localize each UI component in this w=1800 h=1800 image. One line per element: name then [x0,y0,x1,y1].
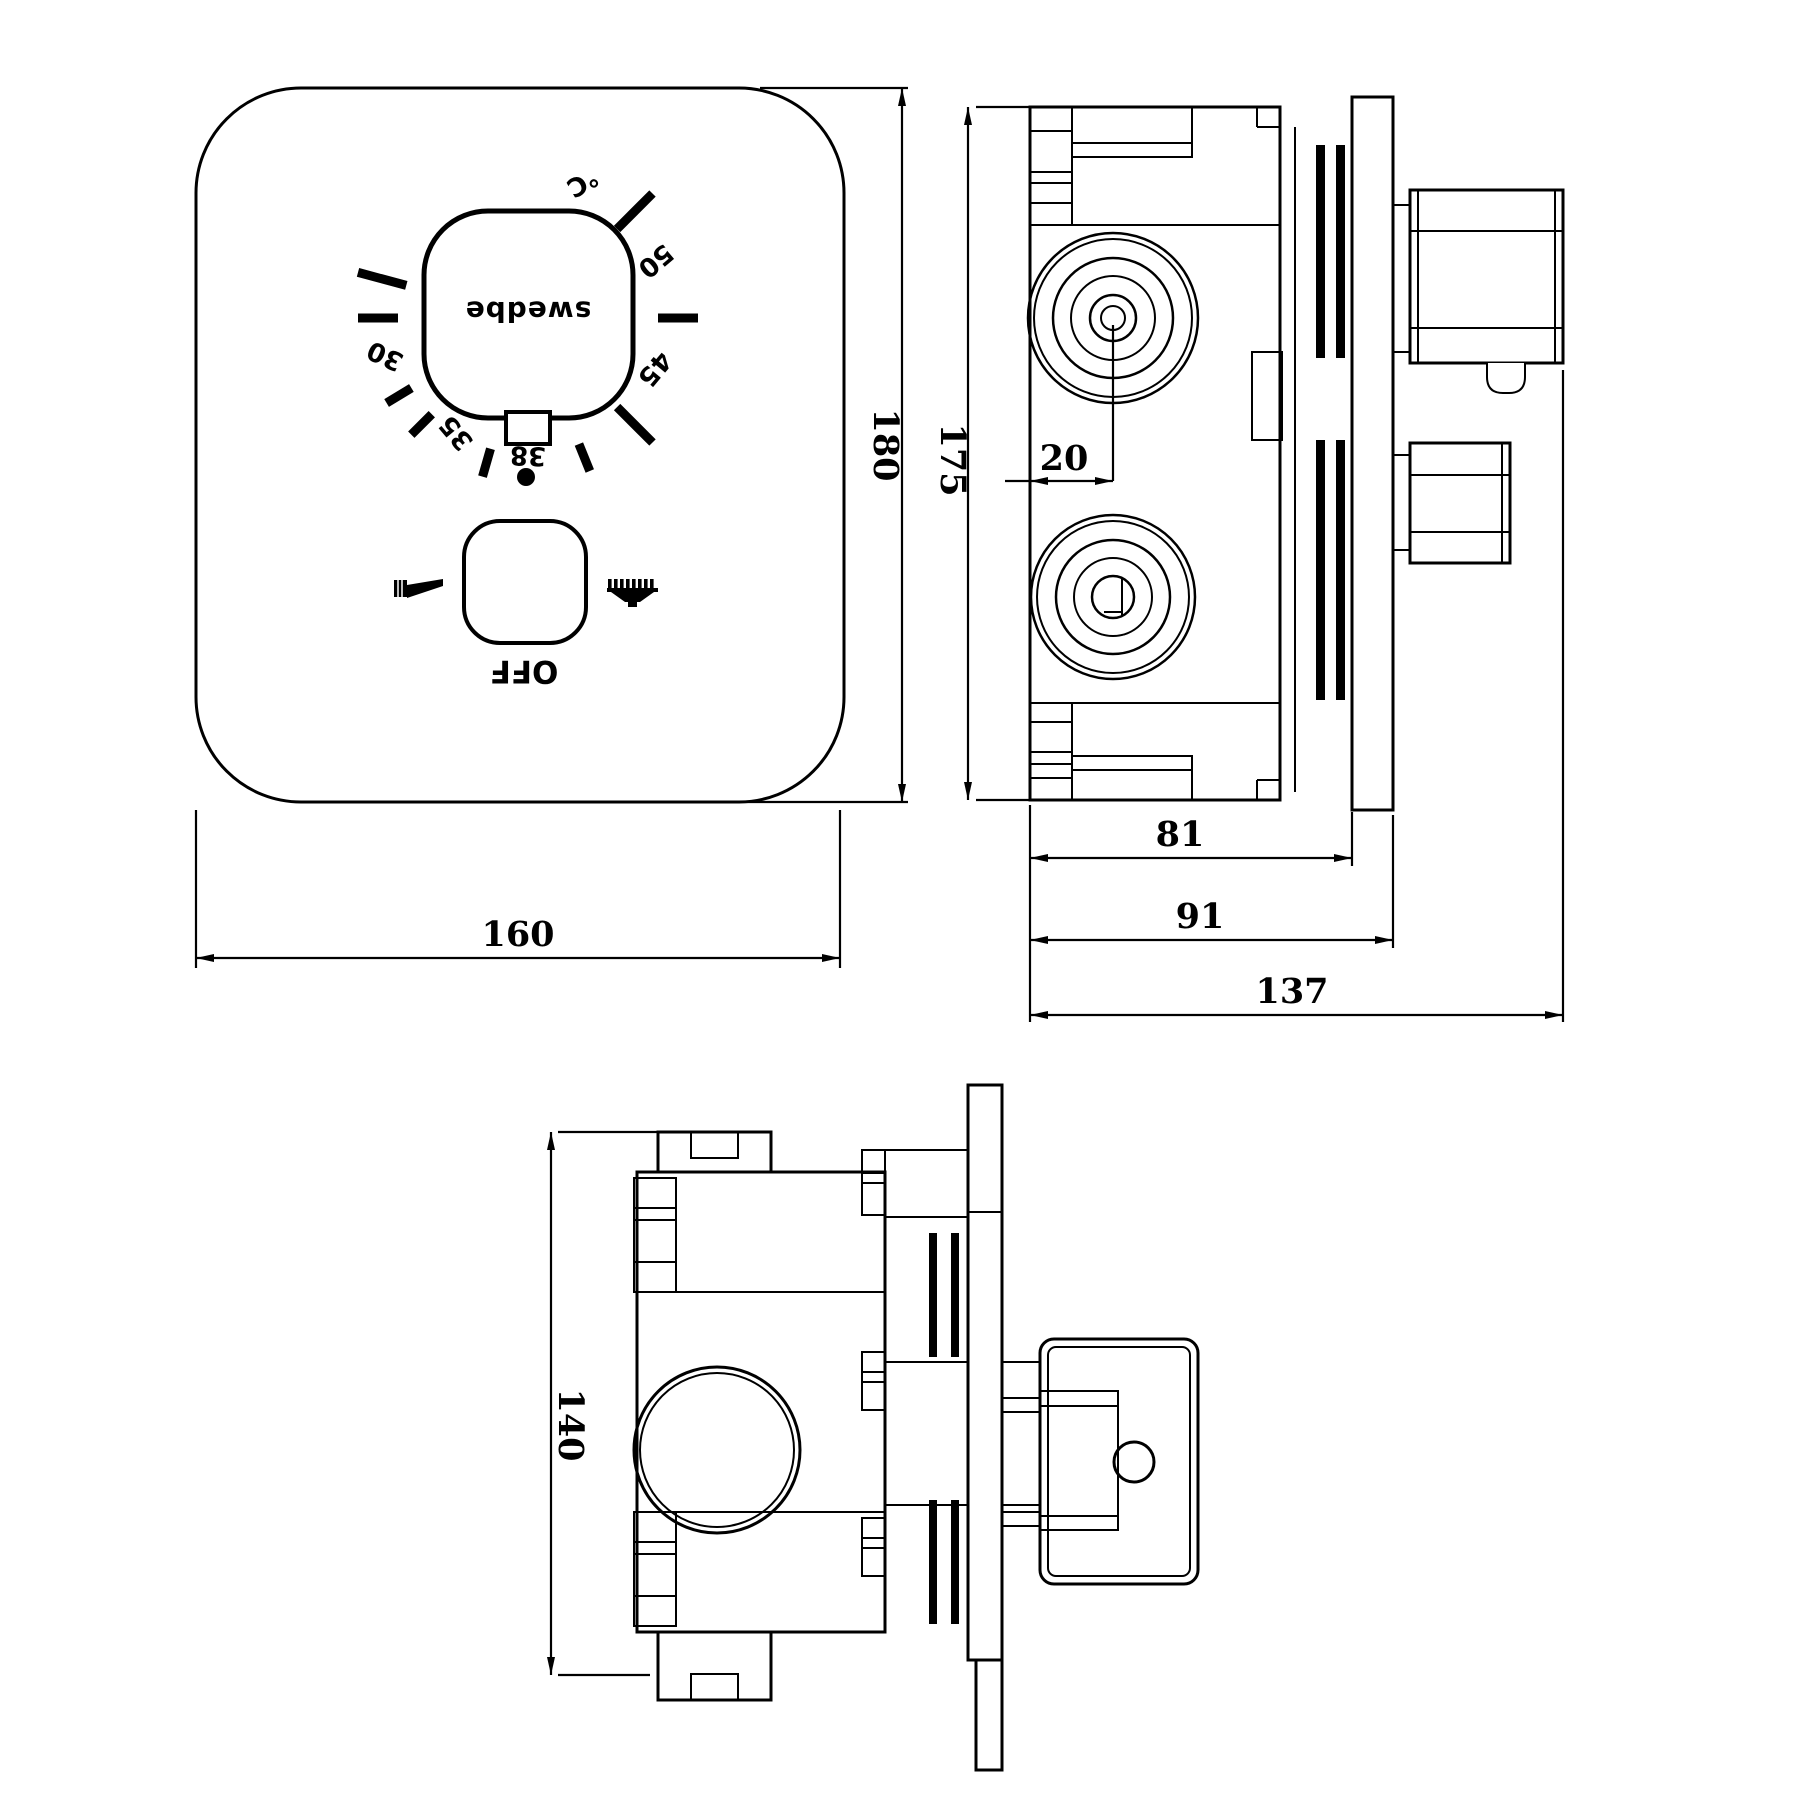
dial-tick [358,272,406,285]
side-port-bottom [1031,515,1195,679]
dial-tick [617,407,652,442]
side-faceplate-edge [1352,97,1393,810]
bath-spout-icon [394,579,443,598]
diverter-control: OFF [394,521,658,689]
dial-tick [411,414,432,435]
dial-temp-label: 45 [631,345,677,392]
dial-tick [579,444,590,471]
dim-height-180: 180 [737,88,908,802]
off-label: OFF [490,653,559,689]
shower-head-icon [607,579,658,607]
bottom-view: 140 [547,1085,1198,1770]
dim-91-label: 91 [1176,896,1225,937]
dial-tick [387,388,412,403]
dial-tick [617,194,652,229]
dim-20-label: 20 [1040,438,1089,479]
dial-temp-label: 38 [509,439,546,470]
bottom-knob [1002,1339,1198,1584]
dim-height-label: 180 [865,408,906,481]
dial-tick [483,449,491,477]
technical-drawing-page: swedbe 3035384550℃ OFF [0,0,1800,1800]
dim-137-label: 137 [1255,971,1328,1012]
dim-depth-91: 91 [1030,815,1393,948]
dim-height-175: 175 [932,107,1034,800]
technical-drawing-canvas: swedbe 3035384550℃ OFF [0,0,1800,1800]
dim-port-offset-20: 20 [1005,325,1113,485]
side-view: 175 20 81 91 [932,97,1563,1022]
dial-temp-label: 50 [632,237,679,283]
dim-140-label: 140 [550,1388,591,1461]
dial-safety-dot [517,468,535,486]
diverter-knob [464,521,586,643]
bottom-faceplate-edge [968,1085,1002,1770]
dim-81-label: 81 [1156,814,1205,855]
dim-width-label: 160 [481,914,554,955]
dim-175-label: 175 [932,423,973,496]
side-safety-button [1487,363,1525,393]
front-view: swedbe 3035384550℃ OFF [196,88,908,968]
dim-width-160: 160 [196,810,840,968]
dial-temp-label: 30 [363,334,408,376]
dial-knob-tab [506,412,550,444]
bottom-cartridge-circle [634,1367,800,1533]
dial-brand-label: swedbe [465,295,592,328]
bottom-body [634,1132,1040,1700]
side-temp-knob [1393,190,1563,393]
side-diverter-knob [1393,443,1510,563]
bottom-gaskets [929,1233,959,1624]
temp-dial: swedbe 3035384550℃ [358,161,698,486]
dial-temp-label: ℃ [561,161,603,203]
side-gaskets [1316,145,1345,700]
